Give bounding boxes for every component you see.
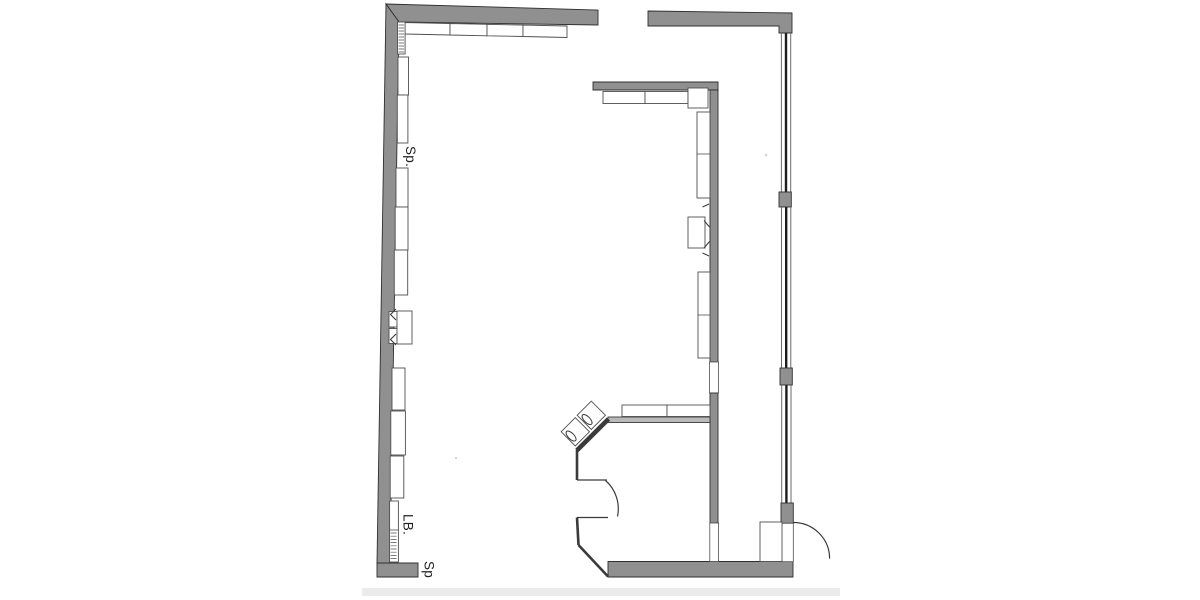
counter-run-interior bbox=[603, 88, 710, 358]
counter-cell bbox=[523, 25, 567, 37]
label-sp-lower: Sp bbox=[422, 561, 437, 578]
counter-cell bbox=[390, 456, 404, 498]
window-segment-upper bbox=[781, 33, 790, 192]
counter-cell bbox=[398, 57, 409, 95]
counter-cell bbox=[396, 168, 408, 207]
radiator-bottom-left bbox=[390, 501, 399, 562]
small-room-partitions bbox=[577, 417, 710, 577]
counter-cell bbox=[603, 92, 645, 104]
interior-wall-vertical-upper bbox=[710, 90, 718, 362]
counter-cell bbox=[392, 368, 405, 410]
scan-speck bbox=[455, 457, 457, 459]
room-partition-left-lower bbox=[577, 518, 579, 546]
exterior-wall-top-right bbox=[648, 11, 792, 33]
entry-door-leaf bbox=[760, 522, 782, 562]
counter-cell bbox=[405, 23, 450, 36]
counter-cell bbox=[395, 207, 408, 250]
window-pier-2 bbox=[780, 368, 792, 385]
entry-door bbox=[760, 522, 830, 562]
counter-cell bbox=[645, 92, 688, 104]
appliance-box-left bbox=[397, 311, 412, 344]
entry-door-swing-arc bbox=[793, 523, 829, 559]
page-edge-shadow bbox=[362, 588, 840, 596]
room-partition-diagonal-lower bbox=[579, 545, 609, 577]
corner-cabinet bbox=[688, 88, 708, 108]
entry-door-opening bbox=[782, 523, 794, 561]
interior-door bbox=[577, 480, 618, 518]
tall-cabinet bbox=[697, 112, 710, 198]
counter-cell bbox=[622, 405, 667, 417]
label-sp-upper: Sp. bbox=[403, 146, 418, 167]
counter-cell bbox=[391, 411, 406, 455]
exterior-walls bbox=[377, 4, 793, 577]
counter-cell bbox=[667, 405, 710, 417]
window-segment-lower bbox=[782, 385, 791, 503]
counter-run-top bbox=[405, 23, 567, 38]
exterior-wall-bottom bbox=[608, 562, 793, 578]
scan-speck bbox=[765, 154, 767, 156]
label-lb: LB. bbox=[401, 514, 416, 535]
counter-cell bbox=[394, 250, 407, 295]
window-band-right bbox=[779, 33, 793, 523]
interior-wall-opening-upper bbox=[710, 362, 719, 393]
counter-cell bbox=[397, 95, 408, 143]
radiator-top-left bbox=[398, 22, 406, 54]
exterior-wall-bottom-left-stub bbox=[377, 563, 418, 577]
floor-plan-scan: Sp. LB. Sp bbox=[0, 0, 1200, 600]
interior-wall-vertical-lower bbox=[710, 393, 718, 523]
counter-cell bbox=[450, 24, 487, 36]
window-segment-middle bbox=[782, 207, 791, 368]
appliance-box-interior bbox=[688, 217, 705, 248]
window-pier-1 bbox=[779, 192, 791, 207]
exterior-wall-top-left bbox=[386, 4, 598, 25]
interior-wall-opening-lower bbox=[710, 523, 719, 562]
counter-run-room-top bbox=[622, 405, 710, 417]
interior-door-swing-arc bbox=[606, 481, 619, 517]
counter-cell bbox=[487, 24, 523, 36]
window-pier-3 bbox=[781, 503, 793, 523]
room-partition-top bbox=[608, 417, 710, 423]
floor-plan-drawing: Sp. LB. Sp bbox=[0, 0, 1200, 600]
